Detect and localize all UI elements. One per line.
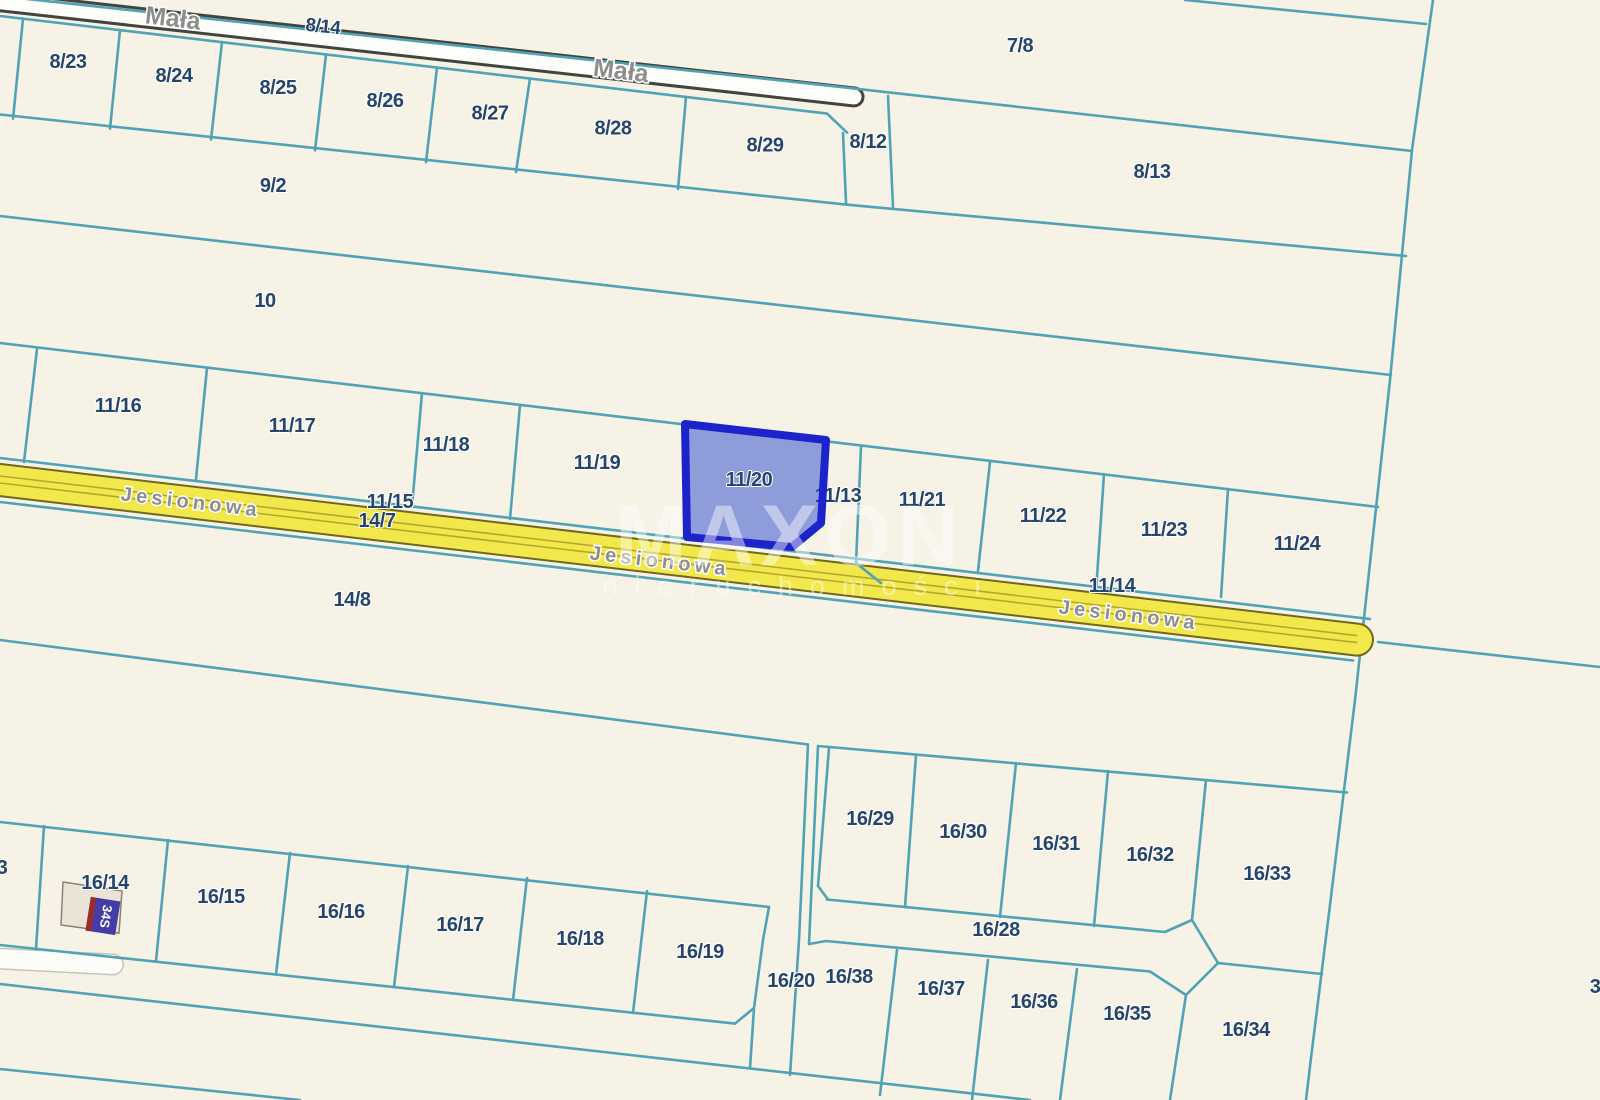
svg-text:11/22: 11/22 xyxy=(1020,505,1067,527)
svg-text:16/17: 16/17 xyxy=(436,914,484,936)
svg-text:7/8: 7/8 xyxy=(1007,35,1034,57)
svg-text:16/14: 16/14 xyxy=(81,872,130,894)
svg-text:9/2: 9/2 xyxy=(260,175,287,197)
svg-text:3: 3 xyxy=(1590,976,1600,998)
svg-text:14/7: 14/7 xyxy=(359,510,396,532)
svg-text:16/38: 16/38 xyxy=(825,966,873,988)
svg-text:16/32: 16/32 xyxy=(1126,844,1174,866)
svg-text:nieruchomości: nieruchomości xyxy=(602,571,997,601)
svg-text:11/17: 11/17 xyxy=(269,415,316,437)
svg-text:8/25: 8/25 xyxy=(260,77,297,99)
svg-text:8/26: 8/26 xyxy=(367,90,404,112)
svg-text:11/24: 11/24 xyxy=(1274,533,1322,555)
svg-text:14/8: 14/8 xyxy=(334,589,371,611)
svg-text:11/14: 11/14 xyxy=(1089,575,1137,597)
svg-text:16/36: 16/36 xyxy=(1010,991,1058,1013)
svg-text:16/20: 16/20 xyxy=(767,970,815,992)
svg-text:8/13: 8/13 xyxy=(1134,161,1171,183)
svg-text:16/33: 16/33 xyxy=(1243,863,1291,885)
svg-text:8/23: 8/23 xyxy=(50,51,87,73)
svg-text:16/31: 16/31 xyxy=(1032,833,1080,855)
svg-text:8/12: 8/12 xyxy=(850,131,887,153)
svg-text:8/14: 8/14 xyxy=(304,15,342,40)
svg-text:8/27: 8/27 xyxy=(472,103,509,125)
svg-text:10: 10 xyxy=(254,290,276,312)
svg-text:16/18: 16/18 xyxy=(556,928,604,950)
svg-text:16/29: 16/29 xyxy=(846,808,894,830)
svg-text:16/30: 16/30 xyxy=(939,821,987,843)
svg-text:16/28: 16/28 xyxy=(972,919,1020,941)
svg-text:MAXON: MAXON xyxy=(615,488,965,584)
svg-text:11/19: 11/19 xyxy=(574,452,621,474)
svg-text:11/23: 11/23 xyxy=(1141,519,1188,541)
svg-text:8/29: 8/29 xyxy=(747,135,784,157)
svg-text:16/15: 16/15 xyxy=(197,886,245,908)
svg-text:3: 3 xyxy=(0,857,8,879)
svg-text:16/16: 16/16 xyxy=(317,901,365,923)
svg-text:16/19: 16/19 xyxy=(676,941,724,963)
svg-text:11/16: 11/16 xyxy=(95,395,142,417)
svg-text:8/28: 8/28 xyxy=(595,118,632,140)
svg-text:16/35: 16/35 xyxy=(1103,1003,1151,1025)
svg-text:16/34: 16/34 xyxy=(1222,1019,1271,1041)
svg-text:11/18: 11/18 xyxy=(423,434,470,456)
svg-text:8/24: 8/24 xyxy=(156,65,194,87)
svg-text:16/37: 16/37 xyxy=(917,978,965,1000)
